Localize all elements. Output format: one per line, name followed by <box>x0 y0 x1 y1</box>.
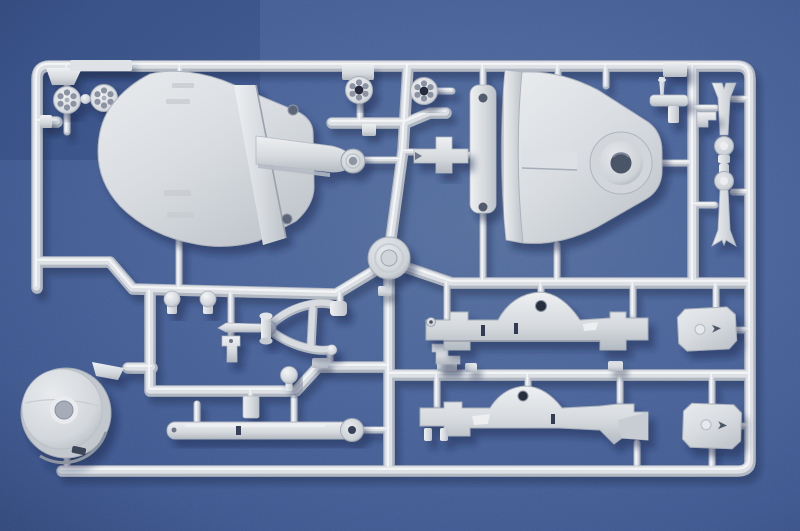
fork-prong <box>424 428 432 441</box>
runner-block <box>608 361 623 371</box>
sprue-photo <box>0 0 800 531</box>
towbar-end <box>327 345 337 355</box>
ball-head <box>281 367 298 384</box>
pin-collar <box>658 78 666 82</box>
spindle-collar <box>260 338 273 345</box>
runner-block <box>40 115 52 128</box>
mount-plate-lower <box>682 403 742 449</box>
runner-block <box>378 286 391 296</box>
axle-hole <box>355 86 364 95</box>
bolt-hole <box>288 105 298 115</box>
spindle-collar <box>260 313 273 320</box>
cluster-post <box>668 106 679 123</box>
plate-dimple <box>695 324 706 335</box>
dome-head <box>164 291 180 307</box>
drum-center-hole <box>55 401 73 419</box>
arm-slot <box>236 426 241 435</box>
axle-slot <box>481 325 485 336</box>
bolt-hole <box>479 94 488 103</box>
dome-head <box>200 291 216 307</box>
arm-pin-hole <box>172 428 177 433</box>
arm-highlight <box>185 424 325 427</box>
roadwheel <box>411 78 438 105</box>
roadwheel <box>346 77 373 104</box>
runner-block <box>312 358 328 368</box>
fork-prong <box>440 428 448 441</box>
runner-block <box>362 124 376 136</box>
knuckle-hole <box>348 426 356 434</box>
towbar-knob <box>330 301 347 316</box>
photo-stage <box>0 0 800 531</box>
runner-block <box>465 363 477 372</box>
mount-plate-upper <box>677 307 737 352</box>
knuckle-center <box>720 142 728 150</box>
leg-foot <box>718 155 730 163</box>
bolt-hole <box>282 214 292 224</box>
hub-hole <box>102 96 107 101</box>
axle-hole <box>420 87 429 96</box>
kingpin-hole <box>536 301 547 312</box>
pivot-hole <box>349 157 357 165</box>
knuckle-center <box>720 177 728 185</box>
lug-hole <box>429 320 433 324</box>
cluster-block <box>663 62 687 77</box>
bolt-hole <box>479 203 488 212</box>
flat-label-tab <box>70 60 132 71</box>
hub-hole <box>65 98 70 103</box>
axle-slot <box>514 323 518 334</box>
plate-dimple <box>701 420 711 430</box>
mount-strip <box>470 85 496 213</box>
kingpin-hole <box>518 391 528 401</box>
sprue-hub <box>368 237 410 279</box>
recoil-slide-arm <box>167 419 364 442</box>
cluster-bar <box>650 95 688 106</box>
sprue-joint <box>81 94 91 104</box>
hub-center <box>381 250 397 266</box>
roadwheel <box>54 87 81 114</box>
bracket-hole <box>229 339 233 343</box>
axle-slot <box>551 414 555 424</box>
